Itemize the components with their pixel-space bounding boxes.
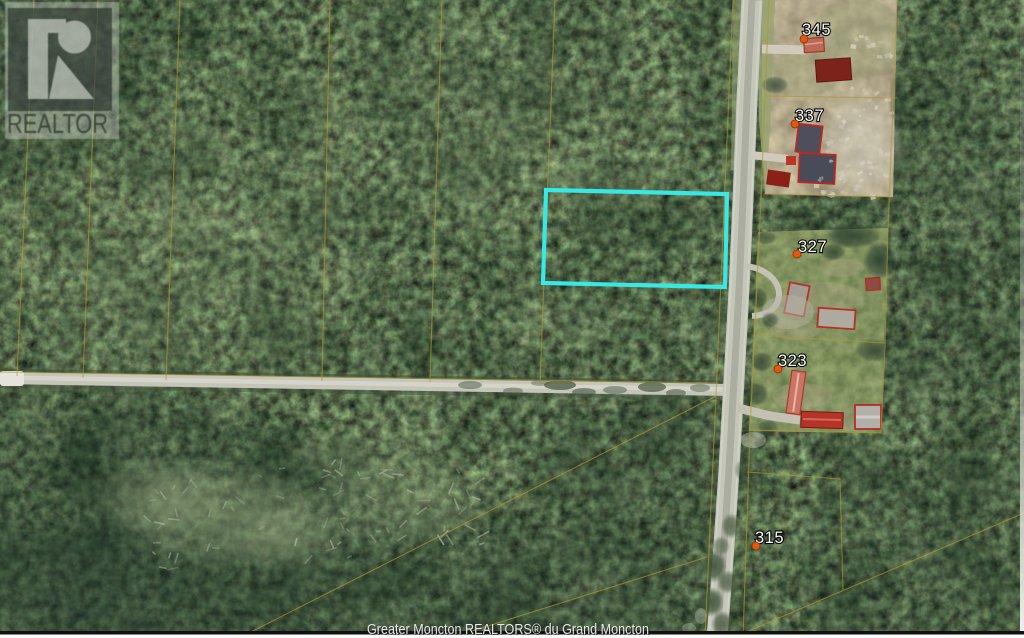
svg-text:®: ® (109, 110, 117, 122)
svg-text:323: 323 (778, 352, 807, 370)
svg-text:327: 327 (798, 238, 827, 256)
svg-text:REALTOR: REALTOR (7, 108, 108, 139)
svg-text:337: 337 (795, 107, 824, 125)
svg-text:Greater Moncton REALTORS® du G: Greater Moncton REALTORS® du Grand Monct… (367, 621, 649, 638)
